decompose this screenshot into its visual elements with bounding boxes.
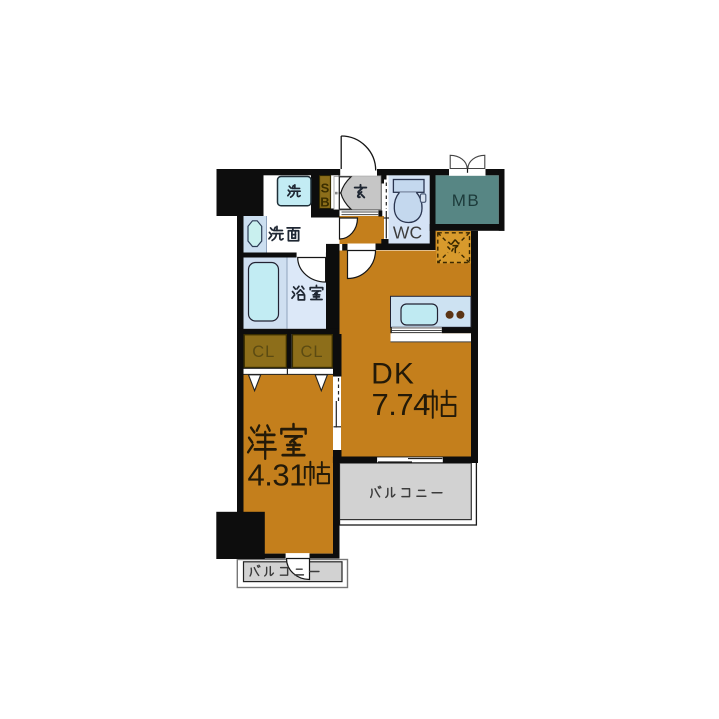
svg-text:WC: WC <box>393 223 422 243</box>
svg-text:7.74: 7.74 <box>372 387 431 422</box>
svg-text:DK: DK <box>371 357 415 390</box>
svg-text:MB: MB <box>452 191 481 210</box>
svg-text:CL: CL <box>300 343 323 361</box>
svg-text:B: B <box>320 195 329 210</box>
svg-text:CL: CL <box>252 343 275 361</box>
svg-text:4.31: 4.31 <box>248 457 306 492</box>
svg-text:S: S <box>321 181 330 196</box>
